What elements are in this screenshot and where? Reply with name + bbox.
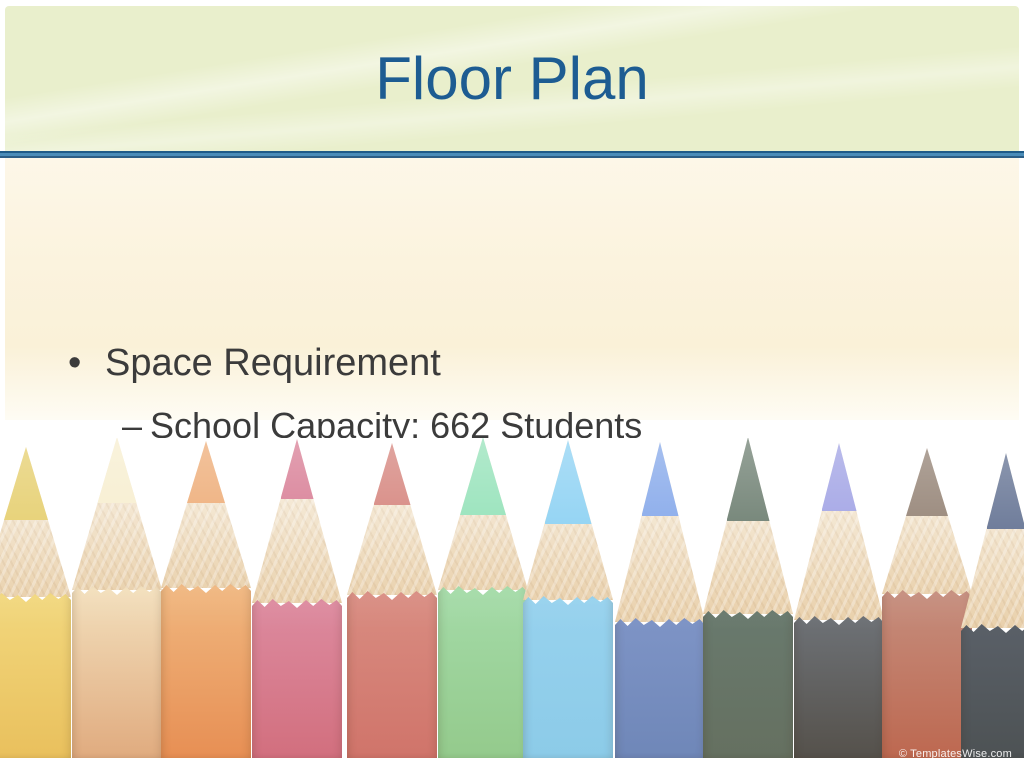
pencil-body <box>161 582 251 758</box>
slide-body: •Space Requirement –School Capacity: 662… <box>5 158 1019 420</box>
pencil-yellow <box>0 447 71 758</box>
pencil-navy <box>961 453 1024 758</box>
bullet-marker: • <box>68 344 105 382</box>
pencil-body <box>438 584 528 758</box>
pencil-body <box>72 584 162 758</box>
template-credit-watermark: © TemplatesWise.com <box>899 748 1012 760</box>
pencil-body <box>794 614 884 758</box>
pencil-tip <box>906 448 948 516</box>
slide-title: Floor Plan <box>5 49 1019 109</box>
pencil-wood-cone <box>961 453 1024 628</box>
pencil-body <box>347 589 437 758</box>
pencil-sky-blue <box>523 440 613 758</box>
pencil-tip <box>460 438 506 515</box>
pencil-dark-green <box>703 438 793 758</box>
pencil-tip <box>642 442 679 516</box>
pencil-red <box>347 443 437 758</box>
pencil-violet <box>794 443 884 758</box>
pencil-body <box>615 616 705 758</box>
pencil-tip <box>4 447 48 520</box>
pencil-tip <box>822 443 857 511</box>
pencil-tip <box>545 440 592 524</box>
slide-canvas: Floor Plan •Space Requirement –School Ca… <box>0 0 1024 768</box>
pencil-tip <box>187 441 225 503</box>
pencil-tip <box>281 439 314 499</box>
pencil-brown <box>882 448 972 758</box>
bullet-item-level1: •Space Requirement <box>68 344 441 382</box>
pencil-cream <box>72 438 162 758</box>
pencils-image <box>0 438 1024 758</box>
pencil-body <box>882 588 972 758</box>
header-divider-line <box>0 151 1024 158</box>
pencil-tip <box>987 453 1024 529</box>
pencil-body <box>703 608 793 758</box>
pencil-body <box>0 591 71 758</box>
pencil-body <box>523 594 613 758</box>
slide-header: Floor Plan <box>5 6 1019 151</box>
pencil-body <box>961 622 1024 758</box>
pencil-orange <box>161 441 251 758</box>
pencil-tip <box>727 438 770 521</box>
pencil-tip <box>374 443 411 505</box>
pencil-tip <box>98 438 137 503</box>
pencil-mint-green <box>438 438 528 758</box>
pencil-body <box>252 597 342 758</box>
pencil-pink <box>252 439 342 758</box>
pencil-wood-cone <box>0 447 71 597</box>
pencil-blue <box>615 442 705 758</box>
bullet-text: Space Requirement <box>105 342 441 384</box>
